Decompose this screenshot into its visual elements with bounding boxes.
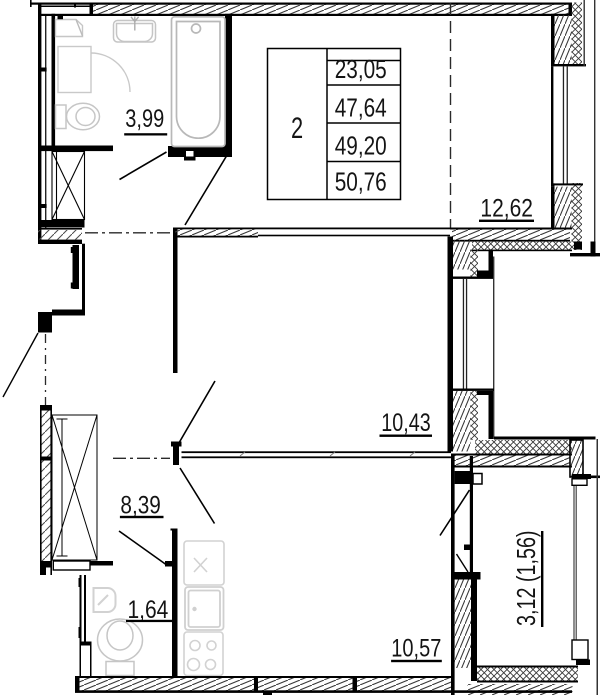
- svg-text:1,64: 1,64: [128, 595, 169, 623]
- svg-text:12,62: 12,62: [480, 194, 533, 222]
- svg-text:50,76: 50,76: [335, 167, 387, 196]
- svg-text:23,05: 23,05: [335, 55, 387, 84]
- svg-text:8,39: 8,39: [120, 491, 160, 519]
- svg-text:3,12 (1,56): 3,12 (1,56): [511, 530, 540, 626]
- svg-text:3,99: 3,99: [125, 105, 164, 133]
- svg-text:10,57: 10,57: [391, 634, 441, 662]
- svg-text:49,20: 49,20: [335, 131, 387, 160]
- svg-text:47,64: 47,64: [335, 93, 387, 122]
- svg-text:10,43: 10,43: [381, 409, 430, 437]
- svg-text:2: 2: [291, 113, 303, 145]
